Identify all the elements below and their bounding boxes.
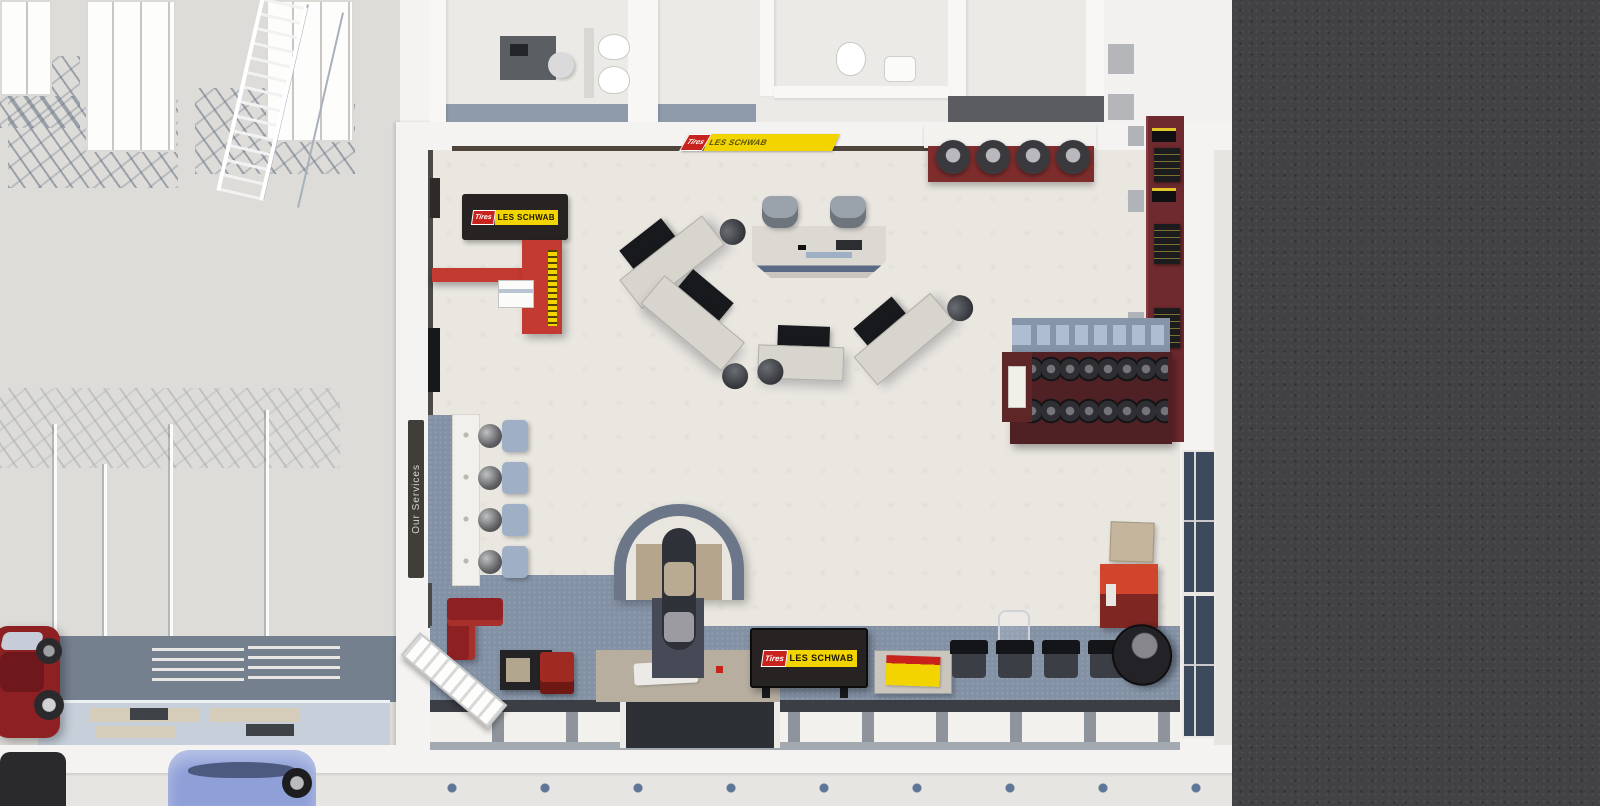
top-wall-sign: Tires LES SCHWAB xyxy=(680,134,840,151)
island-keyboard-tray xyxy=(806,252,852,258)
gondola-capsule-tan xyxy=(664,562,694,596)
tan-storage-box xyxy=(1109,521,1154,563)
storefront-sign-brand: LES SCHWAB xyxy=(786,650,856,667)
wall-bracket-1 xyxy=(1128,126,1144,146)
office-chair xyxy=(548,52,574,78)
lounge-table-tray xyxy=(506,658,530,682)
sales-desk-3 xyxy=(757,324,855,387)
island-chair-right xyxy=(830,196,866,228)
island-tablet xyxy=(798,245,806,250)
right-window-1 xyxy=(1182,450,1216,594)
chair-back xyxy=(1042,640,1080,654)
our-services-sign: Our Services xyxy=(408,420,424,578)
battery-display-2 xyxy=(1152,188,1176,202)
service-bay-car-wheel-rear xyxy=(36,638,62,664)
window-header-band xyxy=(430,700,1180,712)
kiosk-graphic-strip xyxy=(548,250,557,326)
wiper-display-2 xyxy=(1154,224,1180,264)
rooms-carpet-strip xyxy=(446,104,756,122)
room-wall-2 xyxy=(628,0,658,122)
desk-chair xyxy=(757,358,784,385)
lounge-chair-red xyxy=(540,652,574,694)
wall-bracket-2 xyxy=(1128,190,1144,212)
chair-back xyxy=(996,640,1034,654)
vent-grille-2 xyxy=(248,646,340,680)
toilet-2 xyxy=(598,66,630,94)
roof-unit-2 xyxy=(1108,94,1134,120)
office-monitor xyxy=(510,44,528,56)
bollard-dots xyxy=(446,782,1236,794)
bar-stool-4 xyxy=(478,550,502,574)
wiper-display-1 xyxy=(1154,148,1180,182)
pit-slot-2 xyxy=(246,724,294,736)
vent-grille-1 xyxy=(152,648,244,682)
restroom-sink xyxy=(884,56,916,82)
bar-chair-4 xyxy=(502,546,528,578)
entry-red-marker xyxy=(716,666,723,673)
orange-cabinet-slot xyxy=(1106,584,1116,606)
display-tire-2 xyxy=(976,140,1010,174)
chair-seat xyxy=(952,654,986,678)
chair-seat xyxy=(1044,654,1078,678)
service-bay-car-wheel-front xyxy=(34,690,64,720)
storefront-sign-tires: Tires xyxy=(760,650,787,667)
window-ledge xyxy=(430,742,1180,750)
printer xyxy=(498,280,534,308)
bar-chair-3 xyxy=(502,504,528,536)
display-tire-4 xyxy=(1056,140,1090,174)
display-tire-3 xyxy=(1016,140,1050,174)
waiting-chair-2 xyxy=(996,640,1034,682)
blue-car-windshield xyxy=(188,762,296,778)
chair-back xyxy=(950,640,988,654)
pit-cover-2 xyxy=(210,708,300,722)
bar-stool-1 xyxy=(478,424,502,448)
bar-stool-3 xyxy=(478,508,502,532)
toilet-3 xyxy=(836,42,866,76)
bar-stool-2 xyxy=(478,466,502,490)
waiting-chair-1 xyxy=(950,640,988,682)
tire-rack-endcap-sign xyxy=(1008,366,1026,408)
battery-display-1 xyxy=(1152,128,1176,142)
pit-slot-1 xyxy=(130,708,168,720)
tire-rack-carpet xyxy=(1012,318,1170,352)
right-window-2 xyxy=(1182,594,1216,738)
entry-mat-brand: LES SCHWAB xyxy=(495,210,558,225)
office-desk xyxy=(500,36,556,80)
wall-frame xyxy=(430,178,440,218)
waiting-chair-3 xyxy=(1042,640,1080,682)
roof-unit-1 xyxy=(1108,44,1134,74)
storage-rack-c xyxy=(0,0,52,96)
parking-lot-asphalt xyxy=(1232,0,1600,806)
window-sill-row xyxy=(430,712,1180,742)
services-bar-counter xyxy=(452,414,480,586)
promo-sign-yellow xyxy=(885,655,940,687)
our-services-label: Our Services xyxy=(411,464,422,534)
tire-rack-row-upper xyxy=(1022,356,1168,382)
gondola-capsule-gray xyxy=(664,612,694,642)
gondola-shelf-right xyxy=(692,544,722,600)
bar-chair-2 xyxy=(502,462,528,494)
floorplan-render: Tires LES SCHWAB Tires LES SCHWAB Tires … xyxy=(0,0,1600,806)
entrance-recess xyxy=(620,700,780,748)
entry-mat-tires: Tires xyxy=(471,210,496,225)
toilet-1 xyxy=(598,34,630,60)
hallway-roof-band xyxy=(948,96,1106,124)
pit-cover-3 xyxy=(96,726,176,738)
top-wall-sign-brand: LES SCHWAB xyxy=(703,134,840,151)
tire-rack-row-lower xyxy=(1022,398,1168,424)
storefront-sign: Tires LES SCHWAB xyxy=(750,628,868,688)
storage-rack-a xyxy=(86,0,176,152)
lounge-sofa-horizontal xyxy=(447,598,503,626)
room-wall-1 xyxy=(430,0,446,122)
restroom-partition xyxy=(584,28,594,98)
blue-car-wheel xyxy=(282,768,312,798)
display-tire-1 xyxy=(936,140,970,174)
bar-chair-1 xyxy=(502,420,528,452)
island-chair-left xyxy=(762,196,798,228)
parked-car-dark xyxy=(0,752,66,806)
chair-seat xyxy=(998,654,1032,678)
island-monitor xyxy=(836,240,862,250)
entry-logo-mat: Tires LES SCHWAB xyxy=(462,194,568,240)
room-wall-3 xyxy=(760,0,774,96)
room-wall-6 xyxy=(774,86,950,98)
wall-menu-board xyxy=(428,328,440,392)
